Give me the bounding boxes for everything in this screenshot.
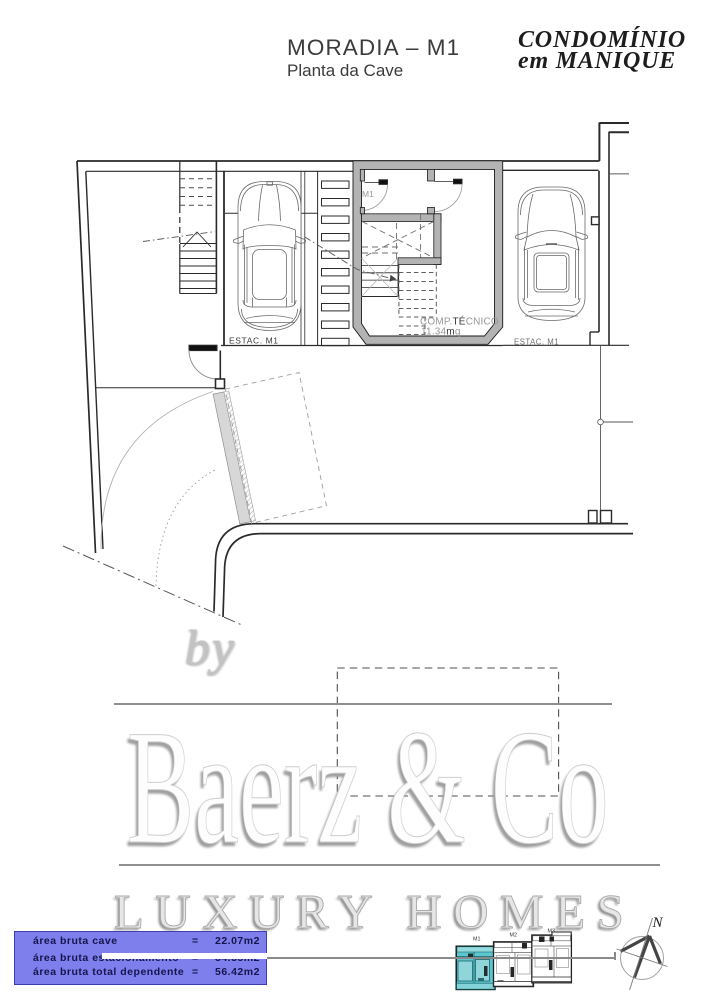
svg-text:ESTAC. M1: ESTAC. M1 [229,336,279,346]
svg-text:11.34mq: 11.34mq [421,327,461,338]
svg-text:M3: M3 [548,929,556,935]
svg-text:M1: M1 [473,937,481,943]
svg-text:ESTAC. M1: ESTAC. M1 [514,338,559,347]
svg-text:M2: M2 [510,933,518,939]
svg-text:M1: M1 [362,189,374,199]
svg-text:N: N [652,915,664,931]
